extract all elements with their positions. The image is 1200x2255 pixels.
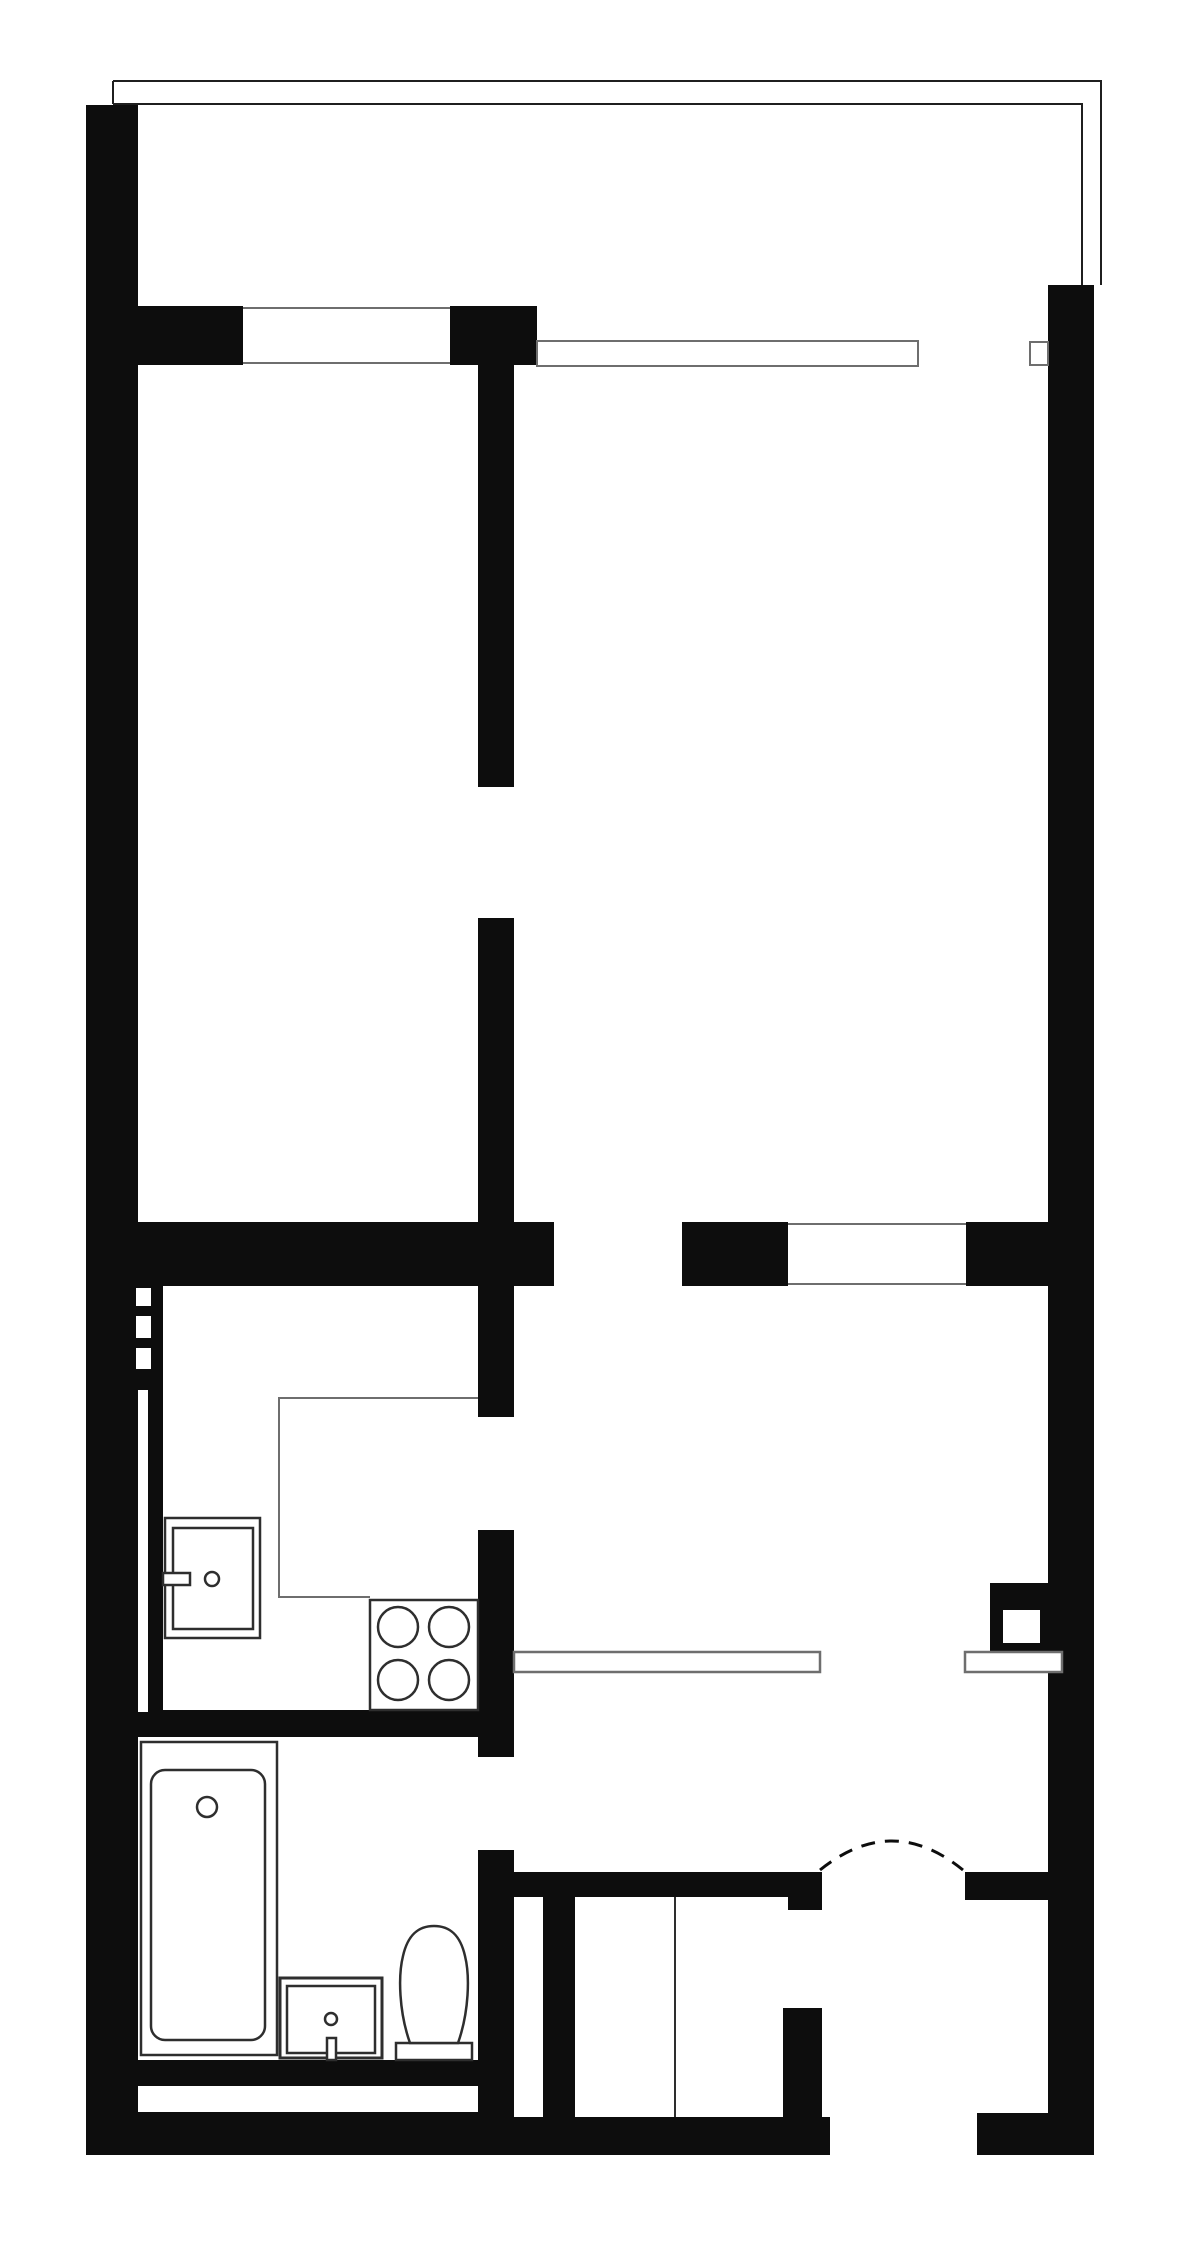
floor-plan-svg xyxy=(0,0,1200,2255)
hall-wall-step xyxy=(788,1897,822,1910)
duct-window xyxy=(1003,1610,1040,1643)
kitchen-bath-wall xyxy=(138,1710,514,1737)
entry-bottom-wall xyxy=(977,2113,1094,2155)
sink-faucet xyxy=(205,1572,219,1586)
hall-top-wall-right xyxy=(965,1872,1048,1900)
partition-wall-middle xyxy=(478,918,514,1417)
toilet-bowl xyxy=(400,1926,468,2043)
mid-wall-left-segment xyxy=(138,1222,554,1286)
toilet-tank xyxy=(396,2043,472,2060)
top-wall-left-segment xyxy=(138,306,243,365)
hall-bottom-wall xyxy=(514,2117,830,2155)
stove-burner-4 xyxy=(429,1660,469,1700)
window-notch xyxy=(1030,342,1048,365)
left-exterior-wall xyxy=(86,105,138,2155)
entry-door-swing-arc xyxy=(820,1841,963,1870)
washbasin-drain xyxy=(325,2013,337,2025)
stove-burner-2 xyxy=(429,1607,469,1647)
closet-left-bar xyxy=(543,1897,575,2117)
vent-dash-1 xyxy=(136,1288,151,1306)
closet-right-bar xyxy=(783,2008,822,2117)
washbasin-tap xyxy=(327,2038,336,2060)
entry-shelf xyxy=(965,1652,1062,1672)
stove-burner-1 xyxy=(378,1607,418,1647)
sink-handle xyxy=(163,1573,190,1585)
wall-channel xyxy=(138,1390,148,1712)
mid-wall-right-segment-a xyxy=(682,1222,788,1286)
floor-plan-canvas xyxy=(0,0,1200,2255)
right-exterior-wall xyxy=(1048,285,1094,2155)
mid-wall-right-segment-b xyxy=(966,1222,1048,1286)
bathtub-drain xyxy=(197,1797,217,1817)
window-band-right xyxy=(537,341,918,366)
hall-top-wall-band xyxy=(478,1872,822,1897)
vent-dash-2 xyxy=(136,1316,151,1338)
stove-burner-3 xyxy=(378,1660,418,1700)
top-wall-center-block xyxy=(450,306,537,365)
vent-dash-3 xyxy=(136,1348,151,1369)
hall-shelf xyxy=(514,1652,820,1672)
balcony-inner-line xyxy=(113,104,1082,285)
balcony-outer-line xyxy=(113,81,1101,285)
partition-wall-upper xyxy=(478,365,514,787)
bath-wall-inset xyxy=(138,2086,478,2112)
kitchen-counter-edge xyxy=(279,1398,478,1597)
